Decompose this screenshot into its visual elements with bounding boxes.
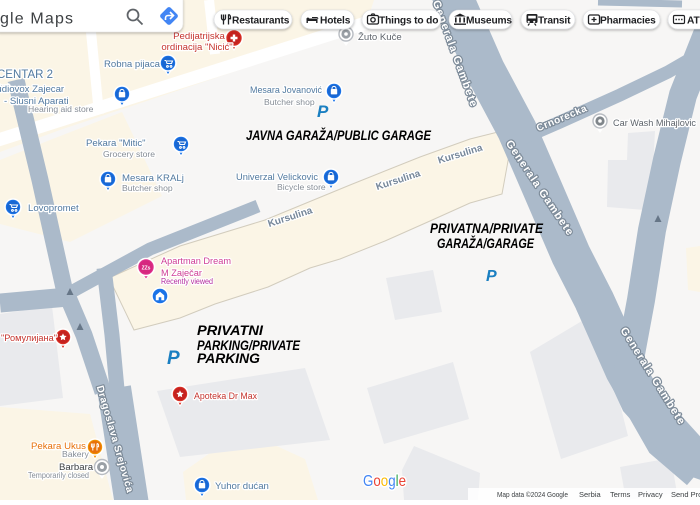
svg-text:PRIVATNI: PRIVATNI xyxy=(197,323,263,338)
svg-text:P: P xyxy=(317,102,329,121)
svg-text:Bakery: Bakery xyxy=(62,449,89,459)
svg-text:ZZs: ZZs xyxy=(142,266,151,272)
svg-text:Restaurants: Restaurants xyxy=(232,16,290,27)
svg-text:ordinacija "Nicić": ordinacija "Nicić" xyxy=(161,42,232,53)
svg-text:"Ромулијана": "Ромулијана" xyxy=(1,333,57,344)
svg-text:Recently viewed: Recently viewed xyxy=(161,276,213,286)
svg-text:PRIVATNA/PRIVATE: PRIVATNA/PRIVATE xyxy=(430,221,544,236)
svg-text:P: P xyxy=(167,348,180,369)
svg-text:Grocery store: Grocery store xyxy=(103,149,155,159)
svg-text:Butcher shop: Butcher shop xyxy=(264,97,315,107)
svg-text:Apoteka Dr Max: Apoteka Dr Max xyxy=(194,391,257,402)
svg-text:Mesara Jovanović: Mesara Jovanović xyxy=(250,85,322,96)
svg-text:Temporarily closed: Temporarily closed xyxy=(28,470,89,480)
svg-text:CENTAR 2: CENTAR 2 xyxy=(0,69,53,81)
svg-text:Pedijatrijska: Pedijatrijska xyxy=(173,31,225,42)
svg-text:Serbia: Serbia xyxy=(579,490,602,499)
svg-text:Transit: Transit xyxy=(538,16,571,27)
svg-text:Hotels: Hotels xyxy=(320,16,351,27)
svg-text:Audiovox Zajecar: Audiovox Zajecar xyxy=(0,84,65,95)
svg-text:Yuhor dućan: Yuhor dućan xyxy=(215,481,269,492)
svg-text:GARAŽA/GARAGE: GARAŽA/GARAGE xyxy=(437,236,535,251)
svg-text:Terms: Terms xyxy=(610,490,631,499)
svg-text:Lovopromet: Lovopromet xyxy=(28,203,79,214)
svg-text:Send Produc: Send Produc xyxy=(671,490,700,499)
svg-text:Map data ©2024 Google: Map data ©2024 Google xyxy=(497,490,568,499)
svg-text:AT: AT xyxy=(687,16,700,27)
svg-text:Hearing aid store: Hearing aid store xyxy=(28,104,94,114)
svg-text:Butcher shop: Butcher shop xyxy=(122,183,173,193)
svg-text:Privacy: Privacy xyxy=(638,490,663,499)
svg-text:Bicycle store: Bicycle store xyxy=(277,182,326,192)
svg-text:P: P xyxy=(486,268,497,285)
svg-text:Car Wash Mihajlovic: Car Wash Mihajlovic xyxy=(613,118,696,129)
svg-text:Žuto Kuče: Žuto Kuče xyxy=(358,32,402,43)
svg-text:gle Maps: gle Maps xyxy=(0,11,73,28)
svg-text:Robna pijaca: Robna pijaca xyxy=(104,59,161,70)
svg-text:Pharmacies: Pharmacies xyxy=(600,16,656,27)
svg-text:Google: Google xyxy=(363,473,406,490)
svg-text:PARKING: PARKING xyxy=(197,351,260,366)
svg-text:JAVNA GARAŽA/PUBLIC GARAGE: JAVNA GARAŽA/PUBLIC GARAGE xyxy=(246,128,432,143)
svg-text:Things to do: Things to do xyxy=(379,16,438,27)
svg-text:Apartman Dream: Apartman Dream xyxy=(161,256,231,267)
svg-text:Pekara "Mitic": Pekara "Mitic" xyxy=(86,138,146,149)
svg-text:Museums: Museums xyxy=(466,16,512,27)
